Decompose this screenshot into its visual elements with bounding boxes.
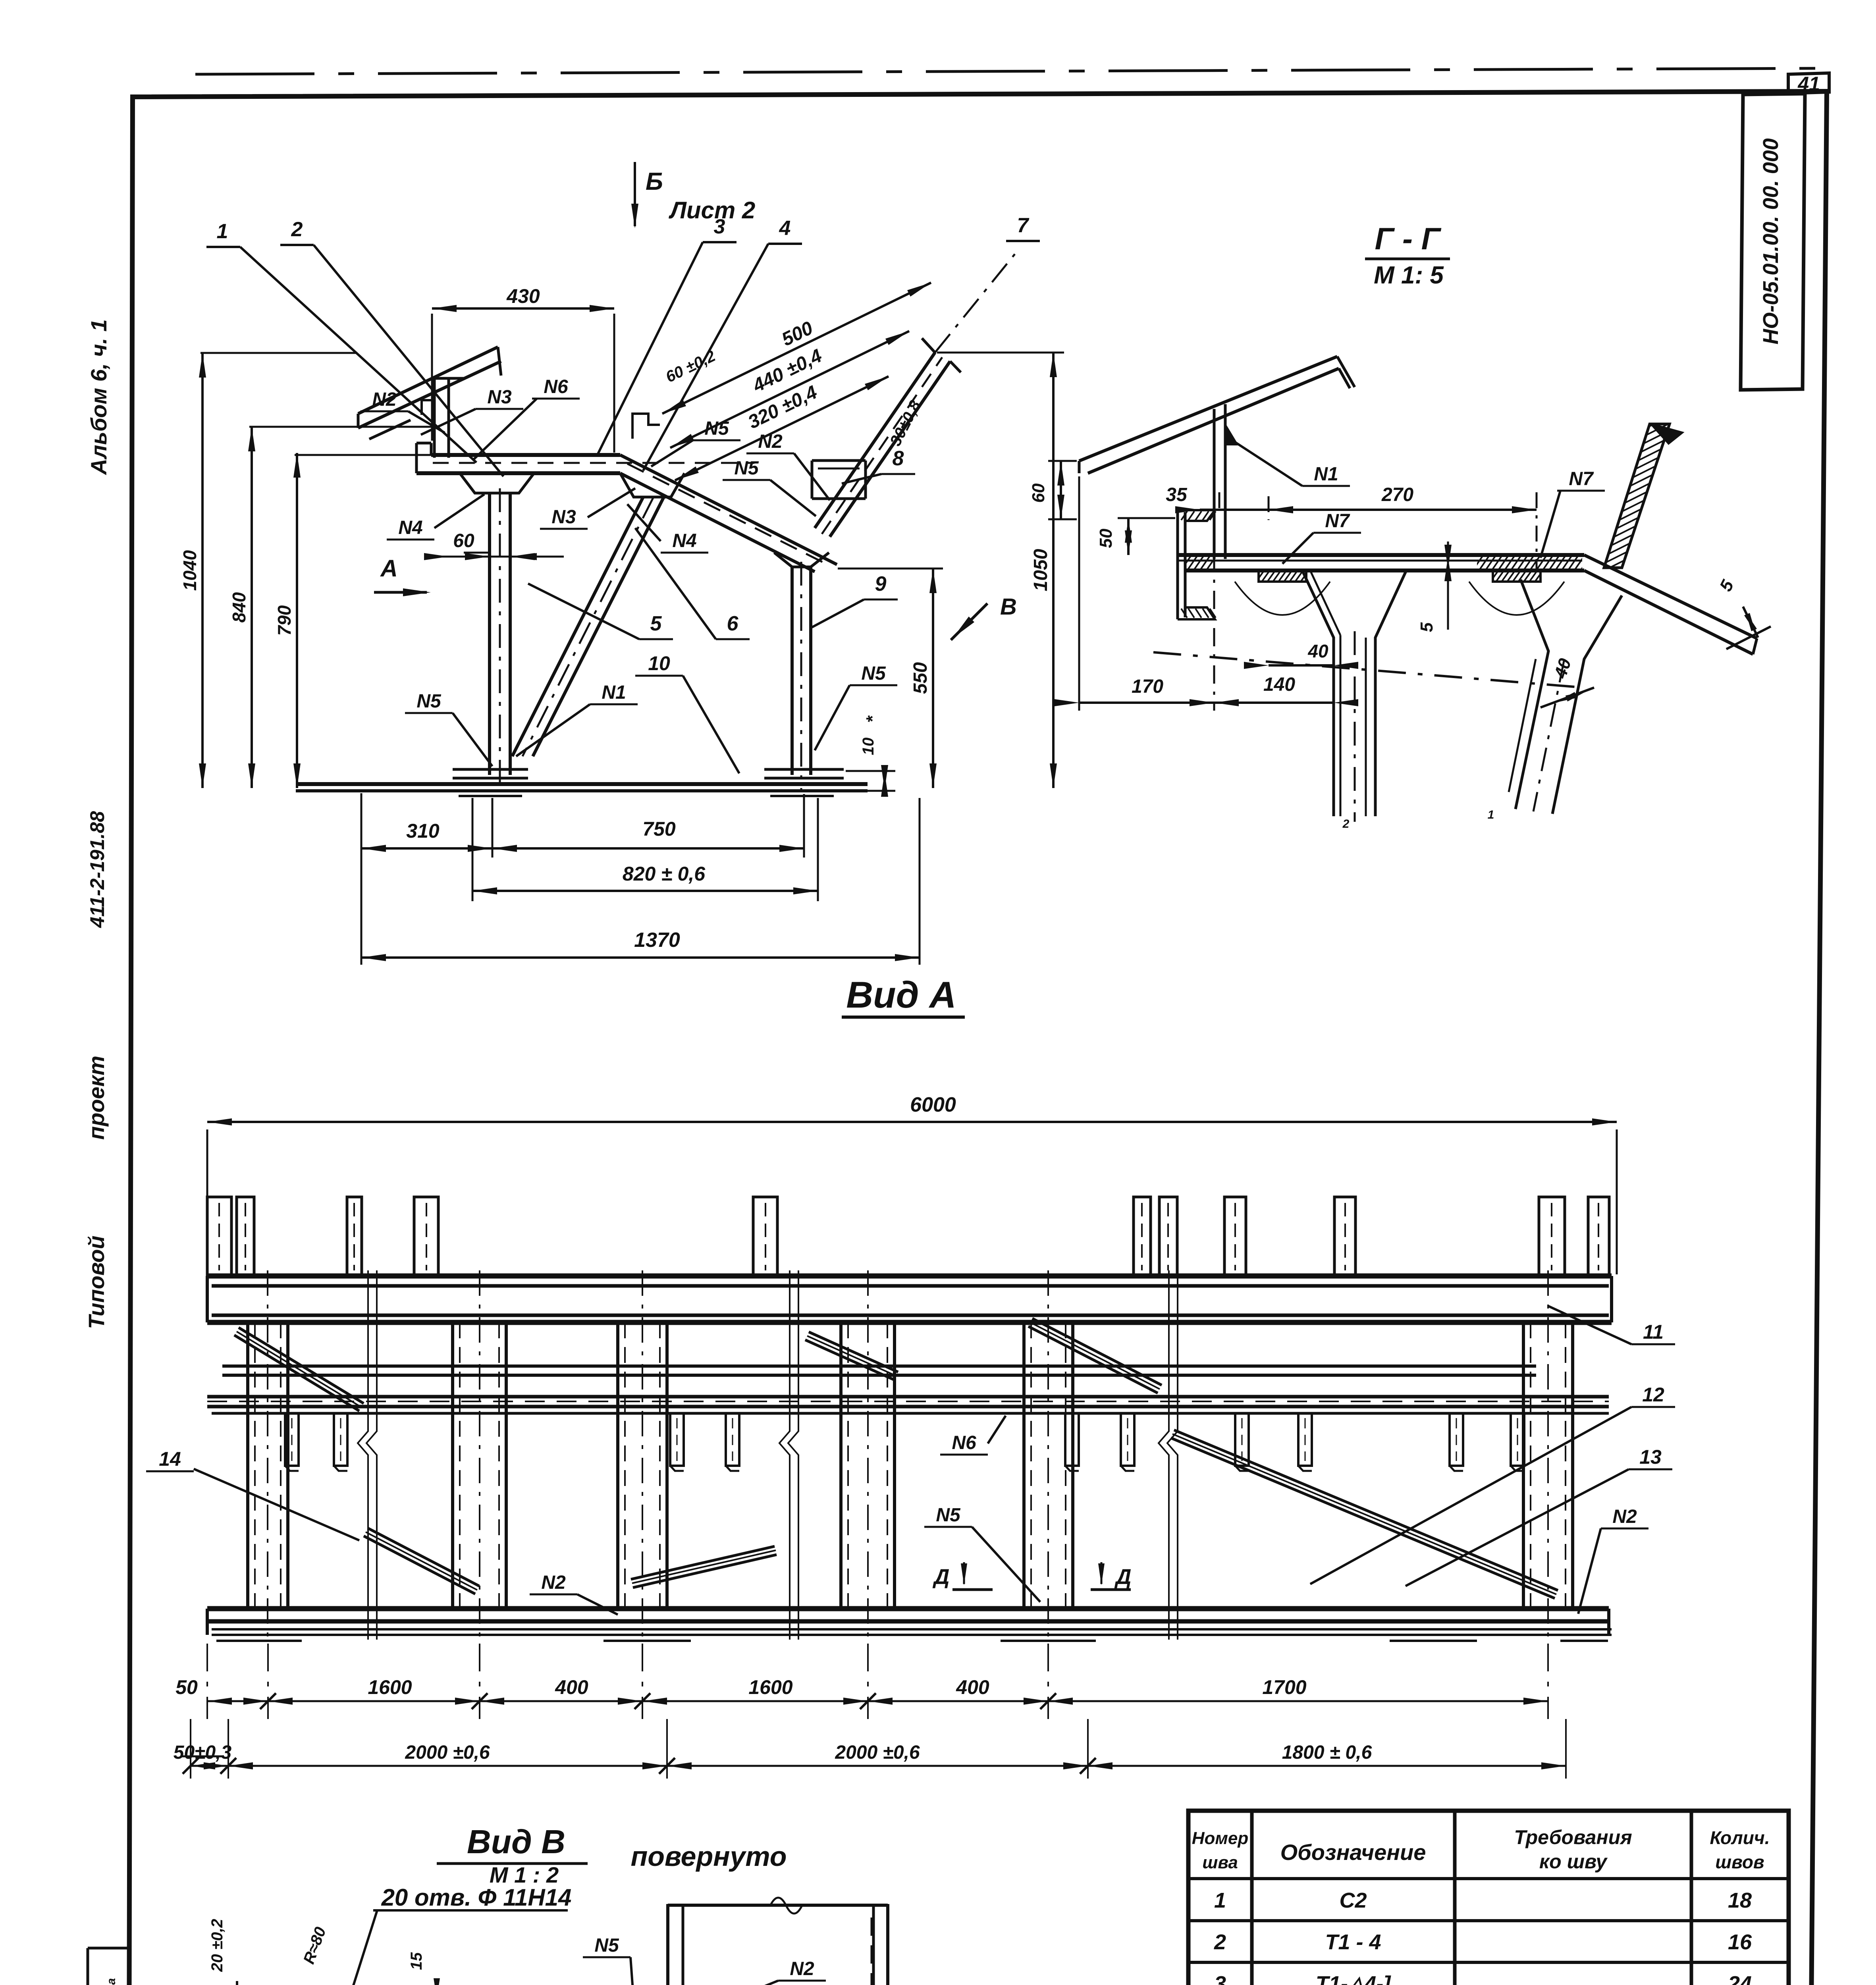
svg-text:10: 10 [860, 738, 877, 755]
svg-text:Вид В: Вид В [467, 1823, 565, 1860]
svg-text:2: 2 [291, 218, 303, 241]
svg-text:1040: 1040 [179, 550, 200, 591]
svg-text:1: 1 [1214, 1889, 1226, 1912]
svg-text:3: 3 [1214, 1972, 1226, 1985]
svg-text:повернуто: повернуто [630, 1841, 787, 1872]
svg-text:40: 40 [1307, 641, 1328, 661]
svg-text:1700: 1700 [1262, 1676, 1306, 1698]
svg-text:50: 50 [1096, 528, 1116, 548]
svg-text:840: 840 [229, 592, 249, 622]
svg-text:Лист 2: Лист 2 [669, 197, 756, 224]
svg-text:Д: Д [1114, 1565, 1132, 1589]
svg-text:N4: N4 [672, 530, 696, 551]
svg-text:ко шву: ко шву [1539, 1850, 1608, 1873]
svg-text:N2: N2 [372, 389, 397, 410]
svg-text:7: 7 [1017, 214, 1030, 237]
svg-text:41: 41 [1797, 73, 1820, 95]
svg-text:2000 ±0,6: 2000 ±0,6 [835, 1742, 920, 1763]
svg-text:Д: Д [933, 1565, 950, 1589]
svg-text:4: 4 [779, 217, 791, 240]
svg-text:N2: N2 [1612, 1506, 1637, 1527]
svg-text:Подп. и дата: Подп. и дата [105, 1978, 118, 1985]
svg-text:2: 2 [1214, 1930, 1226, 1954]
svg-text:Колич.: Колич. [1710, 1827, 1770, 1848]
svg-text:8: 8 [893, 447, 904, 470]
svg-text:1600: 1600 [748, 1676, 792, 1698]
svg-text:2: 2 [1342, 817, 1350, 831]
svg-text:N3: N3 [551, 507, 576, 528]
svg-text:А: А [380, 555, 397, 582]
svg-text:170: 170 [1132, 676, 1163, 697]
svg-text:N2: N2 [541, 1572, 566, 1593]
svg-text:5: 5 [1417, 622, 1436, 632]
svg-text:790: 790 [274, 605, 295, 636]
svg-text:11: 11 [1643, 1321, 1664, 1343]
svg-text:N4: N4 [398, 517, 422, 538]
svg-text:Номер: Номер [1192, 1829, 1249, 1848]
svg-text:N3: N3 [487, 387, 512, 408]
svg-text:шва: шва [1202, 1853, 1238, 1872]
svg-text:В: В [1000, 594, 1017, 620]
svg-text:Б: Б [646, 168, 663, 195]
svg-text:N1: N1 [1314, 464, 1338, 485]
svg-text:50±0,3: 50±0,3 [174, 1742, 232, 1763]
svg-text:N5: N5 [734, 458, 759, 479]
svg-text:Г - Г: Г - Г [1375, 221, 1441, 256]
svg-text:1050: 1050 [1030, 549, 1051, 591]
svg-text:50: 50 [175, 1676, 198, 1698]
svg-text:Обозначение: Обозначение [1280, 1840, 1426, 1865]
svg-text:Т1-△4-]: Т1-△4-] [1316, 1972, 1392, 1985]
svg-text:820 ± 0,6: 820 ± 0,6 [623, 863, 706, 885]
svg-text:9: 9 [875, 572, 887, 595]
svg-text:*: * [863, 715, 882, 723]
svg-text:проект: проект [84, 1056, 109, 1140]
svg-text:N1: N1 [602, 682, 626, 703]
svg-text:5: 5 [650, 612, 662, 635]
svg-text:швов: швов [1715, 1852, 1764, 1872]
svg-text:С2: С2 [1339, 1889, 1367, 1912]
svg-text:430: 430 [506, 285, 540, 307]
svg-text:Вид А: Вид А [846, 974, 956, 1016]
svg-text:60: 60 [1029, 483, 1048, 503]
svg-text:Альбом 6, ч. 1: Альбом 6, ч. 1 [86, 319, 111, 476]
svg-text:1: 1 [217, 220, 228, 243]
svg-text:1370: 1370 [634, 929, 680, 952]
svg-text:N7: N7 [1569, 468, 1594, 490]
svg-text:Типовой: Типовой [84, 1235, 109, 1329]
svg-text:N6: N6 [544, 376, 568, 397]
svg-text:1600: 1600 [368, 1676, 412, 1698]
svg-text:N2: N2 [790, 1958, 814, 1979]
svg-text:3: 3 [714, 215, 725, 238]
svg-text:1800 ± 0,6: 1800 ± 0,6 [1282, 1742, 1372, 1763]
svg-text:10: 10 [648, 652, 670, 675]
svg-text:Т1 - 4: Т1 - 4 [1325, 1930, 1381, 1954]
svg-text:М 1: 5: М 1: 5 [1374, 262, 1444, 289]
svg-text:N2: N2 [758, 431, 783, 452]
svg-text:310: 310 [406, 820, 440, 842]
svg-text:400: 400 [956, 1676, 989, 1698]
svg-text:6000: 6000 [910, 1093, 956, 1116]
svg-text:20 ±0,2: 20 ±0,2 [208, 1919, 226, 1972]
svg-text:60: 60 [453, 530, 474, 551]
svg-text:2000 ±0,6: 2000 ±0,6 [405, 1742, 490, 1763]
svg-text:15: 15 [408, 1952, 425, 1970]
svg-text:N5: N5 [704, 418, 729, 439]
svg-text:14: 14 [159, 1448, 181, 1470]
svg-text:6: 6 [727, 612, 739, 635]
svg-text:N7: N7 [1325, 511, 1350, 532]
svg-text:140: 140 [1263, 674, 1295, 695]
svg-text:750: 750 [642, 818, 676, 840]
svg-text:400: 400 [555, 1676, 588, 1698]
svg-text:411-2-191.88: 411-2-191.88 [86, 811, 108, 928]
svg-text:N5: N5 [936, 1505, 961, 1526]
svg-text:20 отв. Ф 11Н14: 20 отв. Ф 11Н14 [381, 1884, 572, 1911]
svg-text:N6: N6 [952, 1432, 976, 1453]
svg-text:НО-05.01.00. 00. 000: НО-05.01.00. 00. 000 [1759, 138, 1783, 344]
svg-text:18: 18 [1728, 1889, 1752, 1912]
svg-text:Требования: Требования [1514, 1826, 1632, 1848]
svg-text:270: 270 [1381, 484, 1413, 505]
svg-text:16: 16 [1728, 1930, 1752, 1954]
svg-text:13: 13 [1639, 1446, 1662, 1468]
svg-text:N5: N5 [416, 691, 442, 712]
svg-text:35: 35 [1166, 484, 1188, 505]
svg-text:24: 24 [1728, 1972, 1752, 1985]
svg-text:М 1 : 2: М 1 : 2 [490, 1862, 559, 1887]
svg-text:12: 12 [1642, 1384, 1664, 1406]
svg-text:1: 1 [1488, 808, 1494, 821]
svg-text:N5: N5 [861, 663, 886, 684]
svg-text:N5: N5 [594, 1935, 619, 1956]
svg-text:550: 550 [910, 662, 931, 694]
